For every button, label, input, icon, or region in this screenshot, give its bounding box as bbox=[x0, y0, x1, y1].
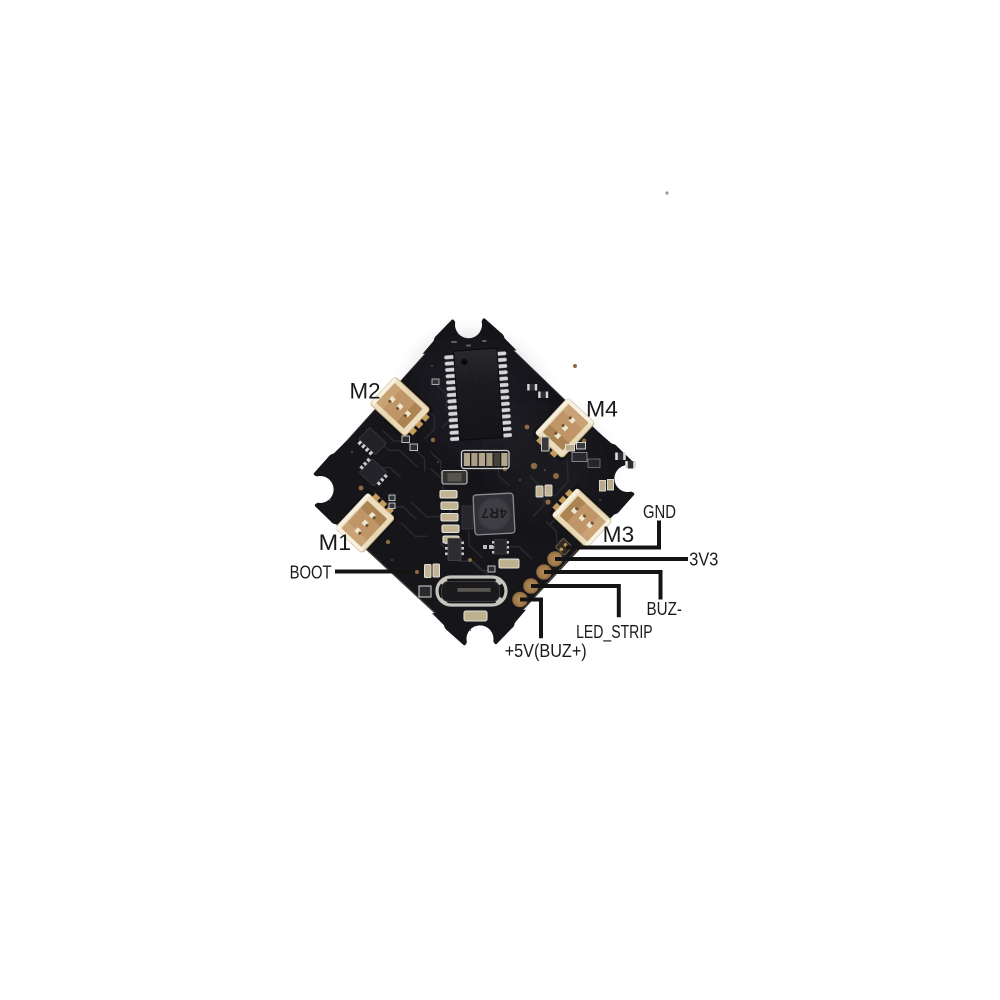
svg-text:LED_STRIP: LED_STRIP bbox=[576, 622, 653, 643]
svg-text:M1: M1 bbox=[319, 530, 352, 555]
svg-text:BOOT: BOOT bbox=[290, 562, 332, 582]
svg-text:4R7: 4R7 bbox=[481, 506, 507, 521]
svg-text:+5V(BUZ+): +5V(BUZ+) bbox=[505, 641, 587, 661]
svg-text:3V3: 3V3 bbox=[689, 550, 718, 570]
svg-text:GND: GND bbox=[643, 502, 676, 522]
svg-text:M2: M2 bbox=[350, 379, 381, 404]
svg-text:BUZ-: BUZ- bbox=[647, 599, 683, 619]
svg-text:M4: M4 bbox=[586, 397, 618, 422]
svg-text:M3: M3 bbox=[603, 522, 635, 547]
